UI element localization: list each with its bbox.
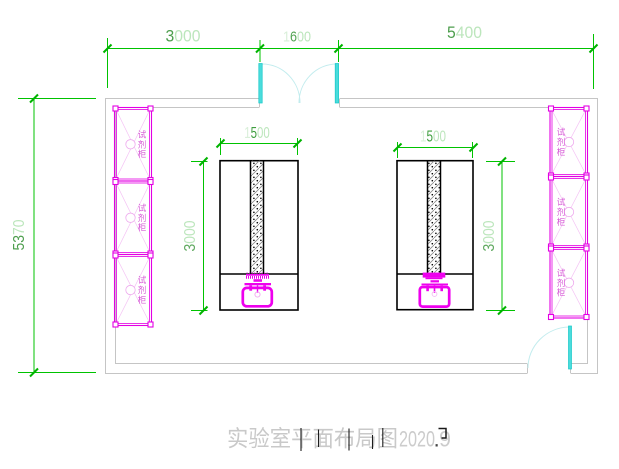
svg-text:柜: 柜 [138, 295, 147, 305]
svg-text:剂: 剂 [557, 278, 566, 288]
svg-text:3000: 3000 [481, 220, 498, 251]
svg-text:试: 试 [138, 129, 147, 139]
svg-text:柜: 柜 [138, 149, 147, 159]
svg-text:试: 试 [557, 197, 566, 207]
svg-text:2020: 2020 [399, 427, 435, 452]
svg-text:剂: 剂 [557, 207, 566, 217]
svg-text:试: 试 [138, 275, 147, 285]
svg-text:试: 试 [557, 127, 566, 137]
svg-text:剂: 剂 [138, 285, 147, 295]
svg-text:剂: 剂 [138, 139, 147, 149]
svg-text:柜: 柜 [557, 288, 566, 298]
svg-text:柜: 柜 [557, 217, 566, 227]
svg-text:3000: 3000 [166, 28, 201, 46]
svg-text:1600: 1600 [283, 29, 311, 46]
svg-text:剂: 剂 [557, 137, 566, 147]
svg-text:5400: 5400 [447, 24, 482, 42]
svg-text:柜: 柜 [557, 147, 566, 157]
svg-text:3000: 3000 [182, 220, 199, 251]
svg-text:柜: 柜 [138, 223, 147, 233]
svg-text:9: 9 [439, 427, 451, 452]
svg-text:剂: 剂 [138, 213, 147, 223]
svg-text:试: 试 [138, 203, 147, 213]
svg-text:1500: 1500 [420, 129, 446, 146]
svg-text:试: 试 [557, 268, 566, 278]
svg-text:1500: 1500 [244, 125, 270, 142]
svg-text:5370: 5370 [11, 219, 28, 250]
